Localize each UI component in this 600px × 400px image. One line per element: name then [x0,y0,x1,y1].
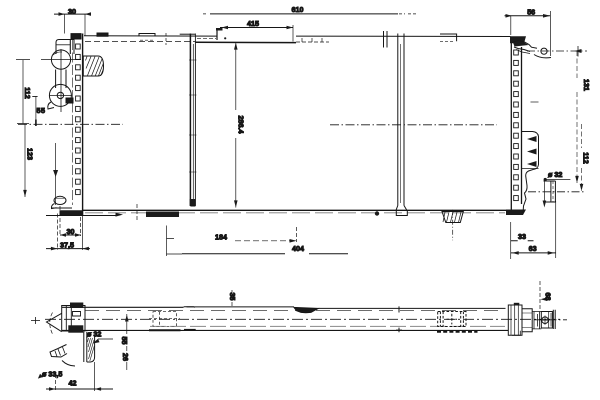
svg-text:56: 56 [527,7,535,16]
svg-text:37,5: 37,5 [60,240,74,249]
svg-text:55: 55 [120,337,129,345]
svg-text:30: 30 [67,227,75,236]
svg-text:404: 404 [292,244,304,253]
svg-text:131: 131 [582,79,591,91]
svg-text:610: 610 [292,5,304,14]
svg-text:35: 35 [228,293,237,301]
svg-text:112: 112 [582,152,591,164]
svg-text:63: 63 [529,244,537,253]
svg-text:55: 55 [37,106,46,115]
svg-text:415: 415 [247,19,259,28]
svg-text:286.4: 286.4 [237,116,246,134]
svg-text:ø 32: ø 32 [548,170,562,179]
svg-text:123: 123 [26,148,35,160]
svg-text:68: 68 [544,293,553,301]
svg-text:26: 26 [121,353,130,361]
svg-text:42: 42 [69,378,77,387]
svg-text:33: 33 [518,232,526,241]
svg-text:184: 184 [215,233,227,242]
svg-text:112: 112 [23,87,32,99]
svg-text:ø 32: ø 32 [87,330,101,339]
